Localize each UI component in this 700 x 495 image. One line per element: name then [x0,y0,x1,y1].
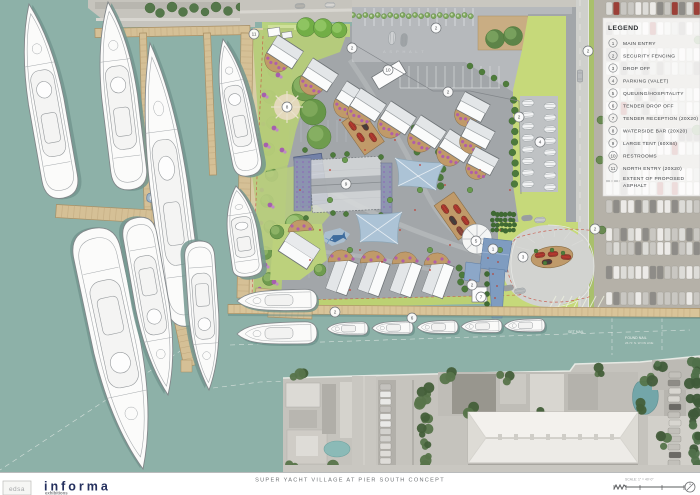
svg-text:2: 2 [351,46,354,51]
svg-text:edsa: edsa [9,486,25,493]
svg-text:2: 2 [471,283,474,288]
svg-text:8: 8 [612,128,615,133]
svg-text:FOUND NAIL: FOUND NAIL [625,336,647,340]
svg-text:9: 9 [612,141,615,146]
svg-text:ASPHALT: ASPHALT [623,183,647,189]
svg-text:2: 2 [334,310,337,315]
svg-text:5: 5 [475,239,478,244]
svg-text:exhibitions: exhibitions [45,491,68,495]
svg-text:3: 3 [522,255,525,260]
svg-text:2: 2 [594,227,597,232]
svg-text:1: 1 [492,247,495,252]
svg-text:6: 6 [612,103,615,108]
svg-text:RESTROOMS: RESTROOMS [623,153,657,159]
svg-text:EXTENT OF PROPOSED: EXTENT OF PROPOSED [623,176,684,182]
svg-text:2: 2 [447,90,450,95]
svg-text:SET NAIL: SET NAIL [568,330,584,334]
svg-text:DROP OFF: DROP OFF [623,66,650,72]
svg-text:2: 2 [587,49,590,54]
svg-text:TENDER RECEPTION (20X20): TENDER RECEPTION (20X20) [623,116,698,122]
svg-text:SCALE: 1" = 40'-0": SCALE: 1" = 40'-0" [625,478,654,482]
svg-text:2: 2 [612,53,615,58]
svg-text:NORTH ENTRY (20X20): NORTH ENTRY (20X20) [623,166,682,172]
svg-text:8: 8 [286,105,289,110]
svg-text:3: 3 [612,66,615,71]
svg-text:11: 11 [611,166,616,171]
svg-text:WATERSIDE BAR (20X20): WATERSIDE BAR (20X20) [623,128,688,134]
svg-text:5: 5 [612,91,615,96]
svg-text:LARGE TENT (60X84): LARGE TENT (60X84) [623,141,677,147]
svg-text:2: 2 [435,26,438,31]
svg-text:4: 4 [539,140,542,145]
svg-text:9: 9 [345,182,348,187]
svg-text:2: 2 [518,115,521,120]
svg-text:10: 10 [610,153,616,158]
svg-text:LEGEND: LEGEND [608,25,639,32]
svg-text:4: 4 [612,78,615,83]
svg-text:TENDER DROP OFF: TENDER DROP OFF [623,103,674,109]
svg-text:6: 6 [411,316,414,321]
svg-text:1: 1 [612,41,615,46]
svg-text:QUEUING/HOSPITALITY: QUEUING/HOSPITALITY [623,91,684,97]
svg-text:PARKING (VALET): PARKING (VALET) [623,78,669,84]
svg-text:10: 10 [385,68,391,73]
svg-text:11: 11 [252,32,257,37]
svg-text:7: 7 [612,116,615,121]
svg-text:A S P H A L T: A S P H A L T [383,49,425,54]
svg-text:SUPER YACHT VILLAGE AT PIER SO: SUPER YACHT VILLAGE AT PIER SOUTH CONCEP… [255,478,445,484]
svg-text:7: 7 [480,295,483,300]
svg-text:26.71' N. W ON LINE: 26.71' N. W ON LINE [625,341,653,345]
svg-text:SECURITY FENCING: SECURITY FENCING [623,53,675,59]
svg-text:MAIN ENTRY: MAIN ENTRY [623,41,656,47]
